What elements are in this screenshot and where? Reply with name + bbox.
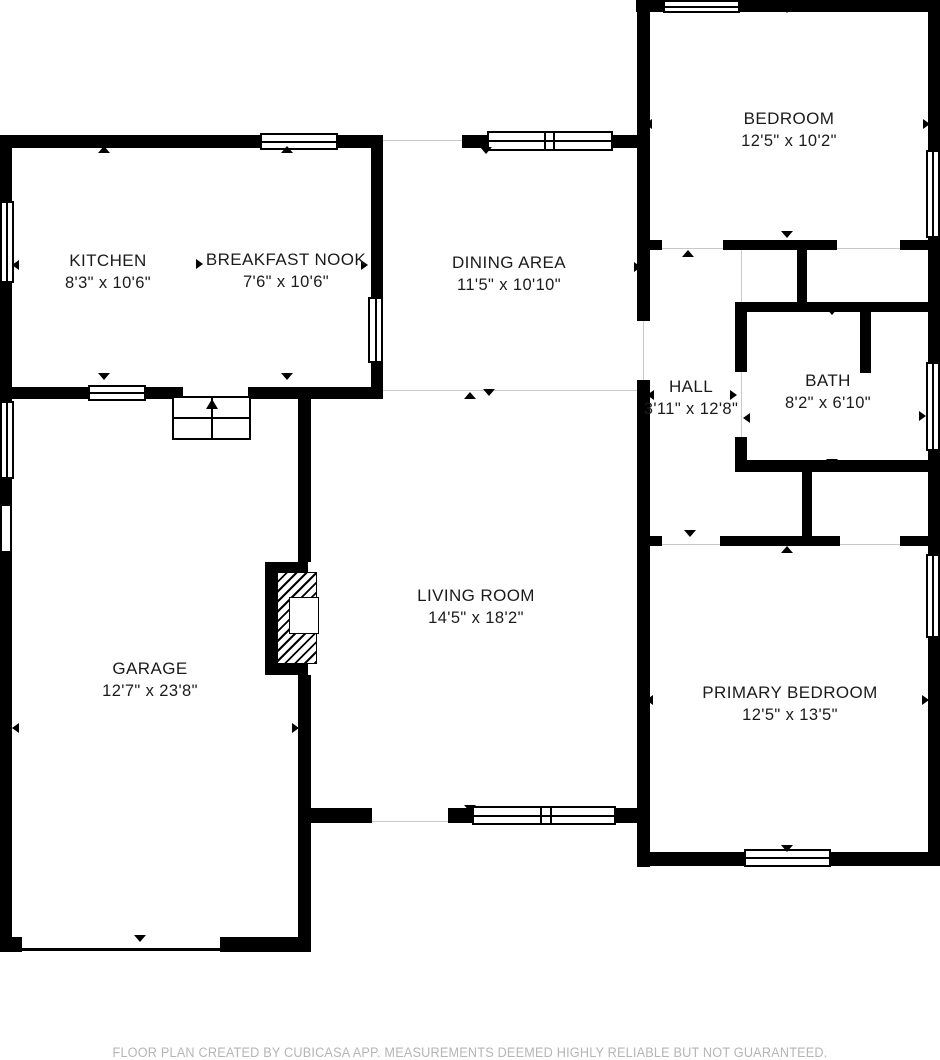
window [926,150,940,238]
wall [248,387,383,399]
window-pane-line [474,815,614,817]
measure-tick-icon [919,411,926,421]
wall [371,363,383,397]
wall [311,808,372,823]
steps-up-arrow-icon [206,399,218,409]
fireplace-insert [289,597,319,634]
room-label-kitchen: KITCHEN 8'3" x 10'6" [65,250,151,294]
window-pane-line [665,6,738,8]
room-label-breakfast-nook: BREAKFAST NOOK 7'6" x 10'6" [206,249,366,293]
measure-tick-icon [743,413,750,423]
disclaimer-text: FLOOR PLAN CREATED BY CUBICASA APP. MEAS… [112,1045,827,1060]
wall [0,387,12,401]
wall [637,0,650,321]
room-name: BATH [785,370,871,392]
room-dims: 14'5" x 18'2" [417,607,535,629]
measure-tick-icon [826,308,838,315]
wall [0,387,89,399]
measure-tick-icon [292,723,299,733]
room-dims: 12'5" x 10'2" [741,130,837,152]
measure-tick-icon [196,259,203,269]
wall [0,135,260,148]
wall [928,638,940,864]
measure-tick-icon [483,389,495,396]
wall [298,387,311,562]
measure-tick-icon [464,805,476,812]
measure-tick-icon [371,260,378,270]
measure-tick-icon [781,231,793,238]
opening-line [383,390,637,391]
window [926,362,940,451]
wall [720,536,840,546]
wall [900,240,940,250]
room-name: GARAGE [102,658,198,680]
opening-line [840,544,900,545]
measure-tick-icon [464,392,476,399]
room-label-dining-area: DINING AREA 11'5" x 10'10" [452,252,566,296]
measure-tick-icon [12,723,19,733]
room-dims: 3'11" x 12'8" [644,398,738,420]
room-label-living-room: LIVING ROOM 14'5" x 18'2" [417,585,535,629]
measure-tick-icon [634,262,641,272]
opening-line [662,248,723,249]
window [926,554,940,638]
wall [649,240,662,250]
window-mullion [544,133,546,149]
wall [797,250,807,302]
wall [615,808,650,823]
room-dims: 8'2" x 6'10" [785,392,871,414]
wall [0,283,12,387]
window-mullion [540,808,542,823]
room-label-primary-bedroom: PRIMARY BEDROOM 12'5" x 13'5" [702,682,877,726]
room-label-bedroom: BEDROOM 12'5" x 10'2" [741,108,837,152]
room-dims: 12'7" x 23'8" [102,680,198,702]
room-label-garage: GARAGE 12'7" x 23'8" [102,658,198,702]
room-name: HALL [644,376,738,398]
measure-tick-icon [781,845,793,852]
opening-line [837,248,900,249]
room-name: LIVING ROOM [417,585,535,607]
wall [0,553,12,952]
steps-up-arrow-stem [211,408,213,435]
window [368,297,383,363]
room-dims: 11'5" x 10'10" [452,274,566,296]
floor-plan: KITCHEN 8'3" x 10'6" BREAKFAST NOOK 7'6"… [0,0,940,1060]
window-pane-line [932,364,934,449]
window-pane-line [932,556,934,636]
window [0,401,14,479]
room-dims: 7'6" x 10'6" [206,271,366,293]
window-pane-line [6,203,8,281]
window-mullion [550,808,552,823]
fireplace-surround-left [265,562,277,675]
room-label-bath: BATH 8'2" x 6'10" [785,370,871,414]
measure-tick-icon [12,260,19,270]
window [0,504,12,553]
room-dims: 12'5" x 13'5" [702,704,877,726]
wall [900,536,940,546]
window [88,385,146,401]
window-pane-line [90,392,144,394]
entry-steps [172,396,251,440]
window [663,0,740,13]
measure-tick-icon [781,6,793,13]
wall [723,240,837,250]
opening-line [741,250,742,302]
wall [0,937,22,952]
wall [637,852,745,866]
room-name: BEDROOM [741,108,837,130]
wall [22,948,220,951]
wall [860,312,871,373]
opening-line [383,140,462,141]
wall [928,238,940,362]
wall [739,0,940,12]
fireplace-surround-bottom [265,664,308,675]
window-pane-line [375,299,377,361]
wall [735,312,747,372]
room-name: KITCHEN [65,250,151,272]
window-pane-line [6,403,8,477]
wall [298,675,311,952]
wall [371,135,383,297]
opening-line [372,821,448,822]
opening-line [741,372,742,437]
window [260,133,338,150]
measure-tick-icon [923,119,930,129]
window-pane-line [489,140,611,142]
opening-line [660,544,720,545]
measure-tick-icon [646,695,653,705]
wall [0,135,12,201]
measure-tick-icon [98,146,110,153]
wall [830,852,940,866]
wall [802,472,812,546]
measure-tick-icon [134,935,146,942]
measure-tick-icon [281,146,293,153]
window-pane-line [746,857,829,859]
window-pane-line [932,152,934,236]
measure-tick-icon [922,695,929,705]
window [0,201,14,283]
room-name: BREAKFAST NOOK [206,249,366,271]
room-name: DINING AREA [452,252,566,274]
room-label-hall: HALL 3'11" x 12'8" [644,376,738,420]
measure-tick-icon [826,459,838,466]
wall [649,536,662,546]
measure-tick-icon [98,373,110,380]
measure-tick-icon [281,373,293,380]
window [487,131,613,151]
window-mullion [553,133,555,149]
measure-tick-icon [781,546,793,553]
window [472,806,616,825]
wall [0,479,12,504]
window-pane-line [262,141,336,143]
opening-line [643,321,644,380]
room-name: PRIMARY BEDROOM [702,682,877,704]
measure-tick-icon [682,250,694,257]
measure-tick-icon [480,147,492,154]
room-dims: 8'3" x 10'6" [65,272,151,294]
measure-tick-icon [645,119,652,129]
measure-tick-icon [684,530,696,537]
